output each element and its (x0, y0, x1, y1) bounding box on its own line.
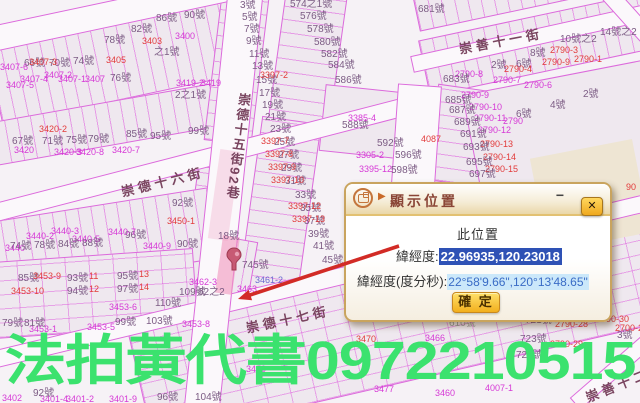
map-label: 592號 (377, 139, 404, 149)
map-label: 683號 (443, 75, 470, 85)
map-label: 3420-7 (112, 146, 140, 155)
map-label: 3407-1 (58, 75, 86, 84)
map-label: 78號 (104, 36, 125, 46)
map-label: 3403 (142, 37, 162, 46)
map-label: 584號 (328, 61, 355, 71)
dialog-heading: 此位置 (346, 224, 610, 243)
map-label: 85號 (126, 130, 147, 140)
map-label: 3419-2 (176, 79, 204, 88)
map-label: 2之1號 (175, 91, 206, 101)
map-label: 14 (139, 283, 149, 292)
close-button[interactable]: ✕ (581, 197, 603, 216)
map-label: 95號 (117, 272, 138, 282)
map-label: 97號 (117, 285, 138, 295)
map-label: 74號 (10, 242, 31, 252)
map-label: 3385-4 (348, 114, 376, 123)
map-label: 3402 (2, 394, 22, 403)
map-label: 3397-12 (288, 202, 321, 211)
map-label: 745號 (242, 261, 269, 271)
caret-right-icon: ▶ (378, 192, 386, 202)
map-label: 582號 (321, 50, 348, 60)
map-canvas[interactable]: 66號70號74號78號82號86號90號76號之1號2之1號3407-6340… (0, 0, 640, 403)
confirm-button[interactable]: 確 定 (452, 292, 500, 313)
map-label: 96號 (157, 393, 178, 403)
map-label: 41號 (313, 242, 334, 252)
map-label: 90號 (177, 240, 198, 250)
map-label: 90 (626, 183, 636, 192)
map-label: 23號 (270, 125, 291, 135)
map-label: 71號 (42, 137, 63, 147)
map-label: 99號 (115, 318, 136, 328)
map-label: 19號 (262, 101, 283, 111)
map-label: 78號 (34, 241, 55, 251)
map-label: 3462-3 (189, 278, 217, 287)
map-label: 3420-8 (76, 148, 104, 157)
dialog-titlebar[interactable]: ▶ 顯示位置 − ✕ (346, 184, 610, 216)
map-label: 12 (89, 285, 99, 294)
location-marker[interactable] (224, 246, 244, 276)
map-label: 88號 (82, 239, 103, 249)
map-label: 18號 (218, 232, 239, 242)
map-label: 3397-8 (265, 150, 293, 159)
map-label: 3400 (175, 32, 195, 41)
map-label: 7號 (244, 25, 260, 35)
map-label: 2790 (503, 117, 523, 126)
map-label: 3450-1 (167, 217, 195, 226)
map-label: 92號 (172, 199, 193, 209)
map-label: 574之1號 (290, 0, 332, 10)
map-label: 74號 (73, 57, 94, 67)
map-label: 86號 (156, 14, 177, 24)
map-label: 3453-10 (11, 287, 44, 296)
map-label: 596號 (395, 151, 422, 161)
map-label: 82號 (131, 25, 152, 35)
map-label: 578號 (307, 25, 334, 35)
map-label: 3407-3 (29, 58, 57, 67)
map-label: 之1號 (154, 48, 180, 58)
map-label: 576號 (300, 12, 327, 22)
map-label: 3401-9 (109, 395, 137, 403)
map-label: 3453-6 (109, 303, 137, 312)
map-label: 79號 (88, 135, 109, 145)
dms-value: 22°58'9.66",120°13'48.65" (447, 274, 588, 290)
map-label: 45號 (322, 256, 343, 266)
map-label: 76號 (110, 74, 131, 84)
map-label: 697號 (469, 170, 496, 180)
map-label: 3305-2 (356, 151, 384, 160)
map-label: 33號 (295, 191, 316, 201)
map-label: 104號 (195, 393, 222, 403)
map-label: 13 (139, 270, 149, 279)
map-label: 3440-9 (143, 242, 171, 251)
map-label: 598號 (391, 166, 418, 176)
map-label: 3395-12 (359, 165, 392, 174)
map-label: 109號 (179, 288, 206, 298)
map-label: 110號 (155, 299, 181, 309)
map-label: 3419 (201, 79, 221, 88)
map-label: 103號 (146, 317, 173, 327)
map-label: 3453-8 (182, 320, 210, 329)
map-label: 21號 (265, 113, 286, 123)
dms-row: 緯經度(度分秒):22°58'9.66",120°13'48.65" (357, 271, 589, 290)
map-label: 81號 (24, 319, 45, 329)
map-label: 3397-13 (292, 215, 325, 224)
map-label: 3397-9 (268, 163, 296, 172)
latlng-label: 緯經度: (396, 249, 439, 264)
map-label: 3461-2 (255, 276, 283, 285)
map-label: 95號 (150, 132, 171, 142)
map-label: 3407-6 (0, 63, 28, 72)
map-label: 3420-2 (39, 125, 67, 134)
map-label: 9號 (246, 37, 262, 47)
map-label: 93號 (67, 274, 88, 284)
map-photo-icon (353, 188, 373, 208)
map-label: 3401-2 (66, 395, 94, 403)
map-label: 10號之2 (560, 35, 597, 45)
map-label: 689號 (454, 118, 481, 128)
map-label: 3397-7 (261, 137, 289, 146)
map-label: 17號 (259, 89, 280, 99)
map-label: 14號之2 (600, 28, 637, 38)
map-label: 75號 (66, 136, 87, 146)
map-label: 94號 (67, 287, 88, 297)
latlng-row: 緯經度:22.96935,120.23018 (396, 246, 562, 265)
minimize-button[interactable]: − (556, 187, 564, 203)
map-label: 3號 (240, 1, 256, 11)
map-label: 586號 (335, 76, 362, 86)
map-label: 5號 (242, 13, 258, 23)
map-label: 2790-9 (542, 58, 570, 67)
map-label: 2790-1 (574, 55, 602, 64)
map-label: 2790-6 (524, 81, 552, 90)
map-label: 3405 (106, 56, 126, 65)
map-label: 3420 (14, 146, 34, 155)
map-label: 2號 (583, 90, 599, 100)
dialog-title: 顯示位置 (390, 191, 458, 211)
map-label: 79號 (2, 319, 23, 329)
map-label: 4087 (421, 135, 441, 144)
map-label: 2790-7 (493, 76, 521, 85)
map-label: 3440-7 (108, 228, 136, 237)
map-label: 687號 (449, 106, 476, 116)
latlng-value[interactable]: 22.96935,120.23018 (439, 248, 562, 265)
map-label: 4號 (550, 101, 566, 111)
map-label: 90號 (184, 11, 205, 21)
map-label: 84號 (58, 240, 79, 250)
map-label: 11 (89, 272, 98, 281)
map-label: 3407 (85, 75, 105, 84)
map-label: 99號 (188, 127, 209, 137)
map-label: 2790-4 (504, 65, 532, 74)
map-label: 580號 (314, 38, 341, 48)
map-label: 11號 (249, 50, 269, 60)
map-label: 3463 (237, 285, 257, 294)
map-label: 681號 (418, 5, 445, 15)
map-label: 3397-2 (260, 71, 288, 80)
watermark-text: 法拍黃代書0972210515 (5, 333, 635, 390)
map-label: 39號 (308, 230, 329, 240)
map-label: 3453-9 (33, 272, 61, 281)
dms-label: 緯經度(度分秒): (357, 274, 447, 289)
map-label: 3397-10 (271, 176, 304, 185)
location-dialog: ▶ 顯示位置 − ✕ 此位置 緯經度:22.96935,120.23018 緯經… (344, 182, 612, 322)
